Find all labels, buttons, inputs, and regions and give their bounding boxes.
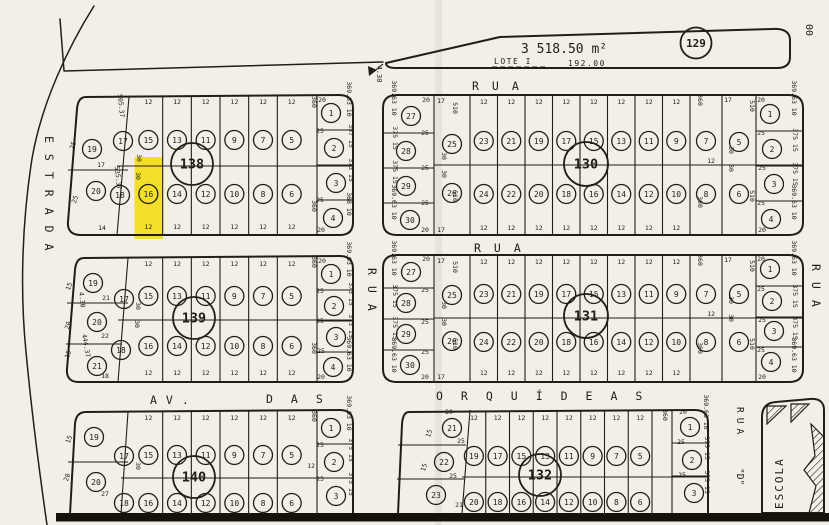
lot-number: 1 xyxy=(768,110,773,119)
dim-label: 20 xyxy=(757,255,765,263)
dim-label: 369.63 10 xyxy=(390,240,398,275)
lot-number: 10 xyxy=(671,338,681,347)
dim-label: 30 xyxy=(440,170,448,178)
block-number: 129 xyxy=(686,37,706,50)
lot-number: 2 xyxy=(770,145,775,154)
lot-number: 1 xyxy=(329,424,334,433)
dim-label: 375 15 xyxy=(391,316,399,340)
lot-number: 17 xyxy=(119,295,129,304)
dim-label: 12 xyxy=(202,98,210,106)
lot-number: 18 xyxy=(561,190,571,199)
lot-number: 12 xyxy=(201,499,211,508)
lot-number: 9 xyxy=(674,290,679,299)
lot-number: 16 xyxy=(517,498,527,507)
dim-label: 369.63 10 xyxy=(390,184,398,219)
lot-number: 2 xyxy=(690,456,695,465)
lot-number: 8 xyxy=(614,498,619,507)
plat-map-canvas: ESTRADA 4.30 3 518.50 m² LOTE I 192.00 1… xyxy=(0,0,829,525)
dim-label: 12 xyxy=(590,98,598,106)
lot-number: 9 xyxy=(232,136,237,145)
lot-number: 27 xyxy=(406,112,416,121)
lot-number: 4 xyxy=(331,214,336,223)
lot-number: 13 xyxy=(172,451,182,460)
dim-label: 20 xyxy=(422,96,430,104)
lot-number: 3 xyxy=(334,179,339,188)
dim-label: 369.63 10 xyxy=(790,337,798,372)
block-number: 131 xyxy=(574,309,598,325)
dim-label: 369.63 10 xyxy=(345,395,353,430)
dim-label: 30 xyxy=(133,320,141,328)
lot-number: 22 xyxy=(506,338,516,347)
lot-number: 14 xyxy=(540,498,550,507)
lot-number: 17 xyxy=(493,452,503,461)
dim-label: 12 xyxy=(590,258,598,266)
lot-number: 19 xyxy=(88,279,98,288)
lot-number: 21 xyxy=(92,362,102,371)
lot-number: 17 xyxy=(119,452,129,461)
lot-number: 13 xyxy=(616,137,626,146)
lot-number: 28 xyxy=(401,147,411,156)
dim-label: 12 xyxy=(612,414,620,422)
dim-label: 12 xyxy=(617,258,625,266)
parcel-name-label: LOTE I xyxy=(494,57,532,66)
dim-label: 373 15 xyxy=(347,282,355,306)
lot-number: 14 xyxy=(616,190,626,199)
dim-label: 12 xyxy=(288,260,296,268)
lot-number: 17 xyxy=(561,290,571,299)
street-label-estrada: ESTRADA xyxy=(42,136,56,261)
dim-label: 12 xyxy=(645,224,653,232)
lot-number: 21 xyxy=(506,137,516,146)
lot-number: 8 xyxy=(261,190,266,199)
dim-label: 12 xyxy=(230,414,238,422)
dim-label: 22 xyxy=(101,332,109,340)
dim-label: 375 15 xyxy=(791,128,799,152)
dim-label: 12 xyxy=(259,414,267,422)
dim-label: 20 xyxy=(445,408,453,416)
dim-label: 375 15 xyxy=(791,162,799,186)
lot-number: 20 xyxy=(534,338,544,347)
dim-label: 368 10 xyxy=(345,192,353,216)
lot-number: 7 xyxy=(704,137,709,146)
lot-number: 14 xyxy=(172,499,182,508)
dim-label: 17 xyxy=(437,257,445,265)
street-label-avenue-prefix: AV. xyxy=(150,393,198,407)
dim-label: 25 xyxy=(757,199,765,207)
dim-label: 12 xyxy=(202,369,210,377)
lot-number: 5 xyxy=(638,452,643,461)
lot-number: 20 xyxy=(91,478,101,487)
lot-number: 2 xyxy=(770,297,775,306)
dim-label: 20 xyxy=(422,255,430,263)
dim-label: 360 xyxy=(310,96,318,108)
dim-label: 12 xyxy=(144,414,152,422)
dim-label: 510 xyxy=(451,338,459,350)
dim-label: 25 xyxy=(316,441,324,449)
frontage-dim-label: 192.00 xyxy=(568,59,606,68)
lot-number: 2 xyxy=(332,458,337,467)
dim-label: 373 15 xyxy=(347,314,355,338)
dim-label: 12 xyxy=(230,223,238,231)
dim-label: 25 xyxy=(758,164,766,172)
lot-number: 21 xyxy=(506,290,516,299)
dim-label: 360 xyxy=(696,196,704,208)
dim-label: 25 xyxy=(316,127,324,135)
dim-label: 25 xyxy=(757,129,765,137)
dim-label: 25 xyxy=(757,285,765,293)
lot-number: 23 xyxy=(479,137,489,146)
dim-label: 25 xyxy=(449,472,457,480)
lot-number: 25 xyxy=(447,291,457,300)
dim-label: 25 xyxy=(421,164,429,172)
dim-label: 12 xyxy=(230,260,238,268)
dim-label: 12 xyxy=(480,224,488,232)
dim-label: 357 15 xyxy=(347,124,355,148)
block-number: 130 xyxy=(574,157,598,173)
scanned-plat-map: ESTRADA 4.30 3 518.50 m² LOTE I 192.00 1… xyxy=(0,0,829,525)
dim-label: 360 xyxy=(661,409,669,421)
lot-number: 9 xyxy=(590,452,595,461)
dim-label: 30 xyxy=(134,172,142,180)
lot-number: 11 xyxy=(644,137,654,146)
lot-number: 16 xyxy=(589,190,599,199)
dim-label: 12 xyxy=(562,258,570,266)
lot-number: 19 xyxy=(87,145,97,154)
dim-label: 369.63 10 xyxy=(390,337,398,372)
dim-label: 25 xyxy=(316,287,324,295)
dim-label: 360 xyxy=(310,256,318,268)
dim-label: 30 xyxy=(727,314,735,322)
dim-label: 12 xyxy=(535,224,543,232)
lot-number: 19 xyxy=(89,433,99,442)
dim-label: 12 xyxy=(617,98,625,106)
dim-label: 25 xyxy=(316,317,324,325)
lot-number: 18 xyxy=(119,499,129,508)
lot-number: 7 xyxy=(704,290,709,299)
dim-label: 12 xyxy=(507,224,515,232)
dim-label: 17 xyxy=(437,373,445,381)
street-label-avenue-das: DAS xyxy=(266,392,341,406)
dim-label: 25 xyxy=(421,318,429,326)
lot-number: 29 xyxy=(401,330,411,339)
dim-label: 12 xyxy=(672,224,680,232)
dim-label: 17 xyxy=(437,226,445,234)
lot-number: 6 xyxy=(737,190,742,199)
lot-number: 23 xyxy=(431,491,441,500)
dim-label: 12 xyxy=(590,224,598,232)
dim-label: 12 xyxy=(507,258,515,266)
dim-label: 20 xyxy=(679,408,687,416)
lot-number: 12 xyxy=(201,190,211,199)
dim-label: 369.63 10 xyxy=(702,394,710,429)
dim-label: 12 xyxy=(470,414,478,422)
dim-label: 20 xyxy=(317,373,325,381)
lot-number: 18 xyxy=(115,191,125,200)
dim-label: 12 xyxy=(589,414,597,422)
lot-number: 1 xyxy=(329,270,334,279)
scan-edge-bar xyxy=(56,513,829,522)
dim-label: 12 xyxy=(507,369,515,377)
street-label-rua-central: RUA xyxy=(365,268,379,322)
street-label-rua-mid: RUA xyxy=(474,241,534,255)
dim-label: 375 15 xyxy=(703,470,711,494)
lot-number: 18 xyxy=(493,498,503,507)
dim-label: 375 15 xyxy=(791,284,799,308)
dim-label: 12 xyxy=(259,98,267,106)
dim-label: 25 xyxy=(421,348,429,356)
dim-label: 30 xyxy=(440,301,448,309)
dim-label: 18 xyxy=(101,372,109,380)
dim-label: 12 xyxy=(173,223,181,231)
block-number: 140 xyxy=(182,470,206,486)
dim-label: 360 xyxy=(696,94,704,106)
edge-mark-label: 00 xyxy=(803,24,814,36)
lot-number: 6 xyxy=(289,342,294,351)
dim-label: 25 xyxy=(757,346,765,354)
lot-number: 8 xyxy=(261,342,266,351)
lot-number: 14 xyxy=(172,342,182,351)
street-label-avenue-name: ORQUÍDEAS xyxy=(436,388,660,403)
dim-label: 12 xyxy=(173,369,181,377)
lot-number: 19 xyxy=(469,452,479,461)
dim-label: 12 xyxy=(645,98,653,106)
lot-number: 24 xyxy=(479,338,489,347)
dim-label: 25 xyxy=(421,286,429,294)
dim-label: 12 xyxy=(535,98,543,106)
dim-label: 12 xyxy=(517,414,525,422)
lot-number: 14 xyxy=(616,338,626,347)
dim-label: 30 xyxy=(727,146,735,154)
lot-number: 16 xyxy=(589,338,599,347)
lot-number: 12 xyxy=(644,190,654,199)
dim-label: 25 xyxy=(421,129,429,137)
lot-number: 7 xyxy=(614,452,619,461)
dim-label: 21 xyxy=(455,501,463,509)
lot-number: 22 xyxy=(506,190,516,199)
dim-label: 369.63 10 xyxy=(390,80,398,115)
dim-label: 375 15 xyxy=(391,160,399,184)
lot-number: 9 xyxy=(232,451,237,460)
street-label-rua-d: RUA xyxy=(734,407,745,439)
dim-label: 12 xyxy=(259,260,267,268)
dim-label: 25 xyxy=(678,471,686,479)
dim-label: 12 xyxy=(288,223,296,231)
dim-label: 12 xyxy=(144,98,152,106)
dim-label: 12 xyxy=(202,414,210,422)
dim-label: 30 xyxy=(727,296,735,304)
lot-number: 5 xyxy=(289,136,294,145)
lot-number: 12 xyxy=(201,342,211,351)
lot-number: 6 xyxy=(638,498,643,507)
lot-number: 21 xyxy=(447,424,457,433)
lot-number: 19 xyxy=(534,137,544,146)
dim-label: 12 xyxy=(707,310,715,318)
dim-label: 12 xyxy=(541,414,549,422)
dim-label: 30 xyxy=(440,152,448,160)
block-number: 132 xyxy=(528,468,552,484)
lot-number: 16 xyxy=(144,190,154,199)
dim-label: 360 xyxy=(696,342,704,354)
dim-label: 25 xyxy=(316,475,324,483)
dim-label: 12 xyxy=(202,260,210,268)
dim-label: 12 xyxy=(562,224,570,232)
lot-number: 11 xyxy=(564,452,574,461)
dim-label: 17 xyxy=(724,256,732,264)
dim-label: 20 xyxy=(317,226,325,234)
street-label-rua-d-suffix: "D" xyxy=(734,468,745,485)
dim-label: 12 xyxy=(636,414,644,422)
lot-number: 2 xyxy=(332,144,337,153)
lot-number: 20 xyxy=(92,318,102,327)
lot-number: 13 xyxy=(172,136,182,145)
dim-label: 510 xyxy=(451,261,459,273)
lot-number: 14 xyxy=(172,190,182,199)
lot-number: 20 xyxy=(534,190,544,199)
dim-label: 12 xyxy=(230,369,238,377)
lot-number: 9 xyxy=(674,137,679,146)
dim-label: 25 xyxy=(677,438,685,446)
lot-number: 11 xyxy=(644,290,654,299)
dim-label: 375 15 xyxy=(347,438,355,462)
dim-label: 20 xyxy=(757,96,765,104)
dim-label: 12 xyxy=(480,369,488,377)
dim-label: 4.30 xyxy=(375,66,383,83)
dim-label: 12 xyxy=(507,98,515,106)
school-label: ESCOLA xyxy=(773,457,786,509)
lot-number: 10 xyxy=(230,190,240,199)
lot-number: 24 xyxy=(479,190,489,199)
dim-label: 20 xyxy=(318,96,326,104)
lot-number: 1 xyxy=(688,423,693,432)
dim-label: 30 xyxy=(134,462,142,470)
dim-label: 12 xyxy=(173,260,181,268)
dim-label: 12 xyxy=(672,369,680,377)
dim-label: 12 xyxy=(480,258,488,266)
dim-label: 360 xyxy=(696,254,704,266)
lot-number: 20 xyxy=(469,498,479,507)
lot-number: 5 xyxy=(737,290,742,299)
lot-number: 18 xyxy=(116,346,126,355)
lot-number: 17 xyxy=(118,137,128,146)
dim-label: 27 xyxy=(101,490,109,498)
dim-label: 12 xyxy=(259,223,267,231)
dim-label: 369.63 10 xyxy=(345,81,353,116)
lot-number: 2 xyxy=(332,302,337,311)
dim-label: 20 xyxy=(421,226,429,234)
dim-label: 510 xyxy=(748,260,756,272)
dim-label: 12 xyxy=(494,414,502,422)
dim-label: 12 xyxy=(230,98,238,106)
lot-number: 27 xyxy=(406,268,416,277)
dim-label: 369.63 10 xyxy=(345,241,353,276)
lot-number: 4 xyxy=(331,363,336,372)
lot-number: 3 xyxy=(334,492,339,501)
dim-label: 12 xyxy=(672,258,680,266)
dim-label: 12 xyxy=(707,157,715,165)
dim-label: 369.63 10 xyxy=(790,184,798,219)
dim-label: 369.63 10 xyxy=(790,80,798,115)
dim-label: 30 xyxy=(134,302,142,310)
lot-number: 4 xyxy=(769,215,774,224)
lot-number: 5 xyxy=(289,451,294,460)
dim-label: 12 xyxy=(173,98,181,106)
dim-label: 12 xyxy=(565,414,573,422)
lot-number: 30 xyxy=(405,216,415,225)
dim-label: 12 xyxy=(645,369,653,377)
dim-label: 510 xyxy=(451,190,459,202)
lot-number: 12 xyxy=(644,338,654,347)
dim-label: 12 xyxy=(259,369,267,377)
dim-label: 12 xyxy=(672,98,680,106)
lot-number: 7 xyxy=(261,136,266,145)
lot-number: 29 xyxy=(401,182,411,191)
dim-label: 14 xyxy=(98,224,106,232)
dim-label: 17 xyxy=(437,97,445,105)
lot-number: 1 xyxy=(329,109,334,118)
lot-number: 10 xyxy=(230,342,240,351)
dim-label: 4.30 xyxy=(77,292,87,308)
parcel-area-label: 3 518.50 m² xyxy=(521,42,607,57)
lot-number: 16 xyxy=(144,342,154,351)
dim-label: 12 xyxy=(202,223,210,231)
block-number: 139 xyxy=(182,311,206,327)
lot-number: 9 xyxy=(232,292,237,301)
lot-number: 13 xyxy=(172,292,182,301)
lot-number: 13 xyxy=(616,290,626,299)
lot-number: 15 xyxy=(144,451,154,460)
lot-number: 6 xyxy=(289,499,294,508)
dim-label: 375 15 xyxy=(391,284,399,308)
lot-number: 7 xyxy=(261,451,266,460)
lot-number: 23 xyxy=(479,290,489,299)
dim-label: 17 xyxy=(724,96,732,104)
lot-number: 6 xyxy=(737,338,742,347)
dim-label: 12 xyxy=(144,369,152,377)
dim-label: 12 xyxy=(617,369,625,377)
dim-label: 12 xyxy=(617,224,625,232)
dim-label: 25 xyxy=(758,316,766,324)
lot-number: 3 xyxy=(772,180,777,189)
street-label-rua-east: RUA xyxy=(809,264,823,318)
lot-number: 7 xyxy=(261,292,266,301)
dim-label: 12 xyxy=(173,414,181,422)
dim-label: 369.63 10 xyxy=(345,336,353,371)
lot-number: 25 xyxy=(447,140,457,149)
dim-label: 20 xyxy=(421,373,429,381)
lot-number: 3 xyxy=(772,327,777,336)
dim-label: 25 xyxy=(317,347,325,355)
dim-label: 375 15 xyxy=(391,126,399,150)
lot-number: 12 xyxy=(564,498,574,507)
lot-number: 10 xyxy=(671,190,681,199)
dim-label: 360 xyxy=(310,410,318,422)
block-number: 138 xyxy=(180,157,204,173)
lot-number: 15 xyxy=(144,292,154,301)
dim-label: 25 xyxy=(457,437,465,445)
lot-number: 11 xyxy=(201,136,211,145)
lot-number: 3 xyxy=(334,333,339,342)
dim-label: 12 xyxy=(288,369,296,377)
lot-number: 3 xyxy=(692,489,697,498)
dim-label: 30 xyxy=(135,154,143,162)
dim-label: 12 xyxy=(144,223,152,231)
lot-number: 22 xyxy=(439,458,449,467)
dim-label: 375 15 xyxy=(791,316,799,340)
dim-label: 510 xyxy=(748,100,756,112)
lot-number: 10 xyxy=(230,499,240,508)
dim-label: 12 xyxy=(562,98,570,106)
dim-label: 12 xyxy=(645,258,653,266)
